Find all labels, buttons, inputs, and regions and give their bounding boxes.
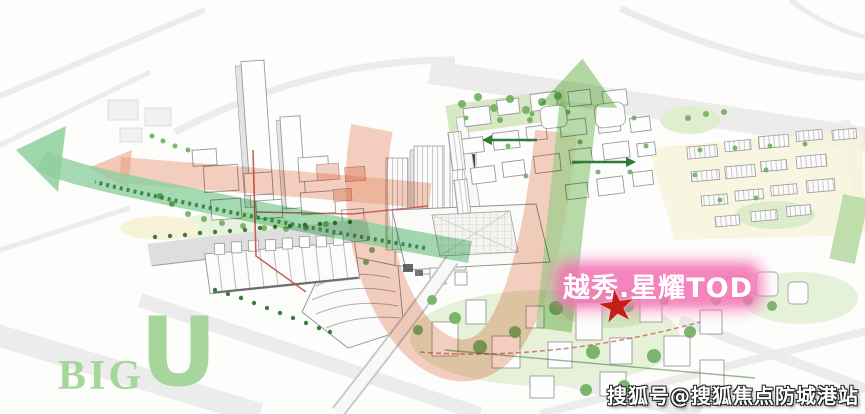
project-name-label: 越秀.星耀TOD [563, 266, 753, 305]
location-star-icon: ★ [594, 282, 639, 331]
masterplan-diagram: 越秀.星耀TOD ★ BIG U 搜狐号@搜狐焦点防城港站 [0, 0, 865, 414]
big-u-caption-u: U [140, 306, 217, 401]
building-cluster-northwest [108, 100, 171, 142]
watermark-text: 搜狐号@搜狐焦点防城港站 [607, 380, 859, 409]
big-u-caption-big: BIG [58, 352, 144, 400]
